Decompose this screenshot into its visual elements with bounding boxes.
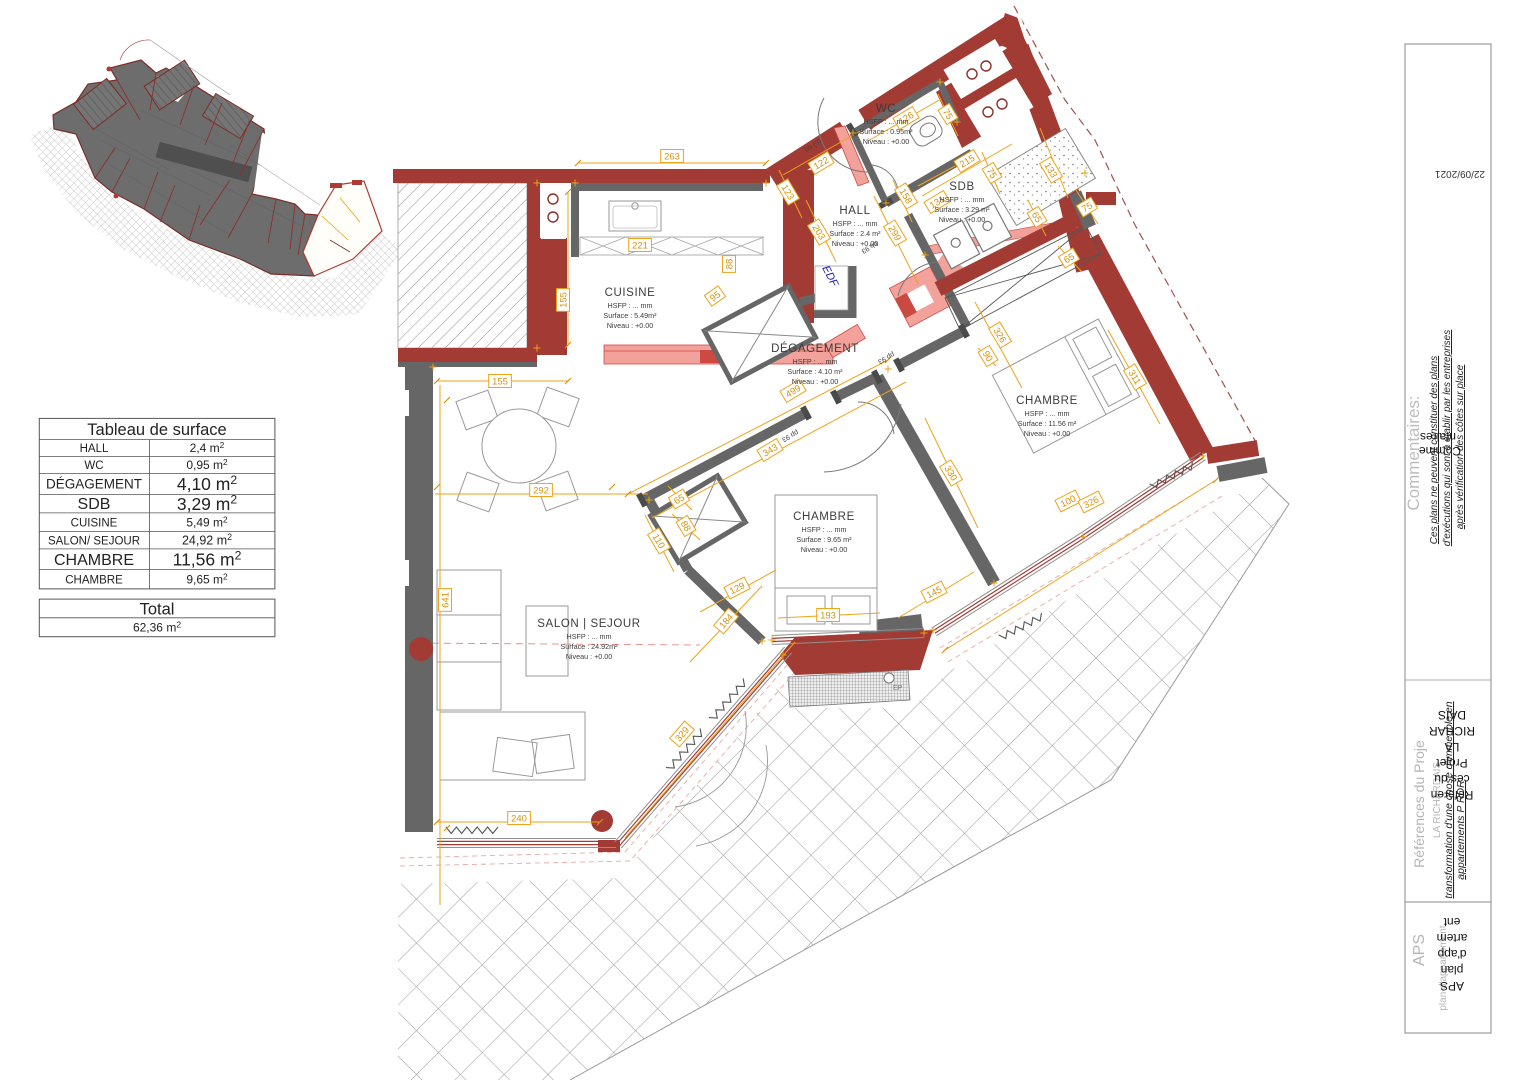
svg-text:11,56 m2: 11,56 m2: [173, 548, 242, 569]
svg-text:Comme: Comme: [1419, 444, 1461, 458]
svg-text:HSFP : ... mm: HSFP : ... mm: [1025, 409, 1070, 418]
svg-text:155: 155: [492, 376, 508, 387]
svg-text:RICHAR: RICHAR: [1429, 724, 1475, 738]
svg-text:HSFP : ... mm: HSFP : ... mm: [940, 195, 985, 204]
svg-text:Total: Total: [140, 601, 175, 619]
svg-text:Références du Proje: Références du Proje: [1411, 740, 1427, 868]
svg-text:292: 292: [533, 485, 549, 496]
svg-text:SALON | SEJOUR: SALON | SEJOUR: [537, 618, 640, 630]
svg-text:HSFP : ... mm: HSFP : ... mm: [793, 357, 838, 366]
svg-text:WC: WC: [84, 460, 103, 472]
svg-text:Surface : 4.10 m²: Surface : 4.10 m²: [787, 367, 843, 376]
svg-text:ces du: ces du: [1434, 772, 1469, 786]
svg-text:APS: APS: [1440, 979, 1464, 993]
svg-text:plan: plan: [1441, 963, 1464, 977]
svg-text:DAIS: DAIS: [1438, 708, 1466, 722]
svg-text:24,92 m2: 24,92 m2: [182, 532, 232, 547]
svg-text:240: 240: [511, 813, 527, 824]
svg-text:Surface : 2.4 m²: Surface : 2.4 m²: [829, 229, 881, 238]
svg-text:Surface : 5.49m²: Surface : 5.49m²: [603, 311, 657, 320]
svg-text:HSFP : ... mm: HSFP : ... mm: [833, 219, 878, 228]
svg-text:Référen: Référen: [1431, 788, 1474, 802]
svg-text:Niveau : +0.00: Niveau : +0.00: [801, 545, 848, 554]
svg-text:DÉGAGEMENT: DÉGAGEMENT: [771, 342, 859, 355]
svg-text:CHAMBRE: CHAMBRE: [793, 511, 855, 523]
svg-text:CHAMBRE: CHAMBRE: [54, 552, 134, 569]
svg-text:641: 641: [440, 592, 451, 608]
svg-text:Niveau : +0.00: Niveau : +0.00: [939, 215, 986, 224]
svg-text:5,49 m2: 5,49 m2: [186, 514, 228, 529]
svg-text:DÉGAGEMENT: DÉGAGEMENT: [46, 477, 142, 492]
svg-text:CUISINE: CUISINE: [605, 287, 656, 299]
svg-text:Niveau : +0.00: Niveau : +0.00: [832, 239, 879, 248]
svg-text:LA: LA: [1445, 740, 1460, 754]
svg-text:88: 88: [724, 259, 735, 270]
svg-text:Projet: Projet: [1436, 756, 1468, 770]
svg-text:d'app: d'app: [1437, 947, 1466, 961]
svg-text:Niveau : +0.00: Niveau : +0.00: [863, 137, 910, 146]
svg-text:221: 221: [632, 240, 648, 251]
svg-text:SDB: SDB: [949, 181, 974, 193]
svg-text:Niveau : +0.00: Niveau : +0.00: [1024, 429, 1071, 438]
svg-text:Surface : 3.29 m²: Surface : 3.29 m²: [934, 205, 990, 214]
svg-text:Tableau de surface: Tableau de surface: [87, 421, 226, 439]
svg-text:Surface : 0.95m²: Surface : 0.95m²: [859, 127, 913, 136]
svg-text:4,10 m2: 4,10 m2: [177, 473, 238, 494]
svg-text:155: 155: [558, 292, 569, 308]
svg-text:HSFP : ... mm: HSFP : ... mm: [802, 525, 847, 534]
svg-text:EP: EP: [893, 685, 903, 692]
svg-text:Surface : 24.92m²: Surface : 24.92m²: [560, 642, 618, 651]
svg-text:2,4 m2: 2,4 m2: [190, 440, 225, 455]
svg-text:SDB: SDB: [78, 496, 111, 513]
svg-text:HSFP : ... mm: HSFP : ... mm: [864, 117, 909, 126]
svg-text:22/09/2021: 22/09/2021: [1435, 168, 1485, 179]
svg-text:0,95 m2: 0,95 m2: [186, 457, 228, 472]
svg-text:ent: ent: [1443, 915, 1460, 929]
svg-text:SALON/ SEJOUR: SALON/ SEJOUR: [48, 535, 140, 547]
svg-text:263: 263: [664, 151, 680, 162]
svg-text:HSFP : ... mm: HSFP : ... mm: [608, 301, 653, 310]
svg-text:Niveau : +0.00: Niveau : +0.00: [566, 652, 613, 661]
svg-text:Niveau : +0.00: Niveau : +0.00: [792, 377, 839, 386]
svg-text:Niveau : +0.00: Niveau : +0.00: [607, 321, 654, 330]
svg-text:ntaires: ntaires: [1420, 430, 1456, 444]
svg-text:HALL: HALL: [80, 443, 109, 455]
svg-text:3,29 m2: 3,29 m2: [177, 493, 238, 514]
svg-text:Surface : 11.56 m²: Surface : 11.56 m²: [1018, 419, 1077, 428]
svg-text:62,36 m2: 62,36 m2: [133, 620, 181, 635]
svg-text:HSFP : ... mm: HSFP : ... mm: [567, 632, 612, 641]
svg-text:artem: artem: [1437, 931, 1468, 945]
svg-text:CUISINE: CUISINE: [71, 517, 118, 529]
svg-text:CHAMBRE: CHAMBRE: [1016, 395, 1078, 407]
svg-text:HALL: HALL: [839, 205, 870, 217]
svg-text:Surface : 9.65 m²: Surface : 9.65 m²: [796, 535, 852, 544]
svg-text:CHAMBRE: CHAMBRE: [65, 574, 123, 586]
svg-text:9,65 m2: 9,65 m2: [186, 571, 228, 586]
svg-text:193: 193: [820, 610, 836, 621]
svg-text:APS: APS: [1411, 934, 1428, 966]
svg-text:WC: WC: [876, 103, 896, 115]
